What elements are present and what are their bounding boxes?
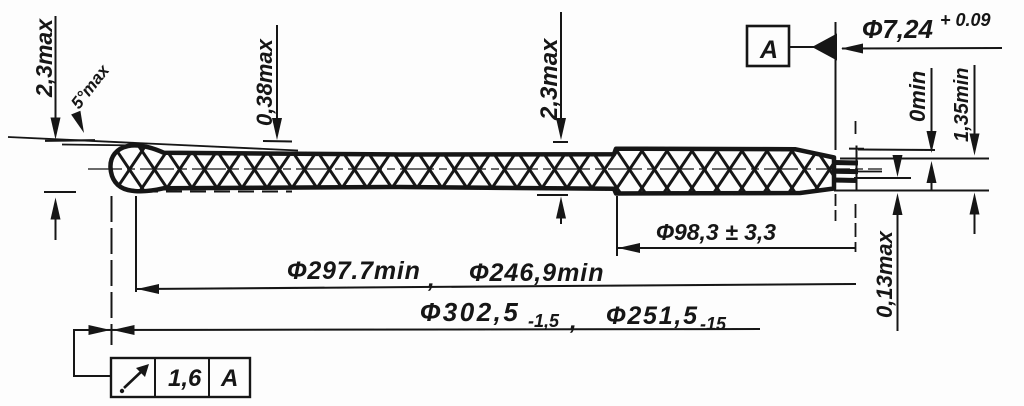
svg-text:Ф98,3 ± 3,3: Ф98,3 ± 3,3 [656,219,776,245]
svg-text:,: , [427,266,435,293]
svg-text:+ 0.09: + 0.09 [940,10,991,30]
svg-text:2,3max: 2,3max [31,18,57,98]
svg-text:1,35min: 1,35min [951,68,973,142]
svg-text:Ф302,5: Ф302,5 [420,297,520,327]
svg-text:A: A [220,365,238,392]
svg-text:Ф251,5: Ф251,5 [606,302,699,330]
svg-text:Ф297.7min: Ф297.7min [287,257,421,285]
svg-text:0min: 0min [905,71,930,122]
svg-text:-1,5: -1,5 [528,311,560,331]
svg-text:0,38max: 0,38max [252,38,277,126]
svg-text:A: A [759,36,778,64]
svg-text:2,3max: 2,3max [536,37,563,121]
svg-text:Ф246,9min: Ф246,9min [469,259,605,287]
svg-text:1,6: 1,6 [168,365,202,392]
svg-text:Ф7,24: Ф7,24 [862,14,933,44]
svg-text:,: , [569,308,577,335]
svg-text:-15: -15 [700,314,727,334]
svg-text:0,13max: 0,13max [872,230,897,318]
